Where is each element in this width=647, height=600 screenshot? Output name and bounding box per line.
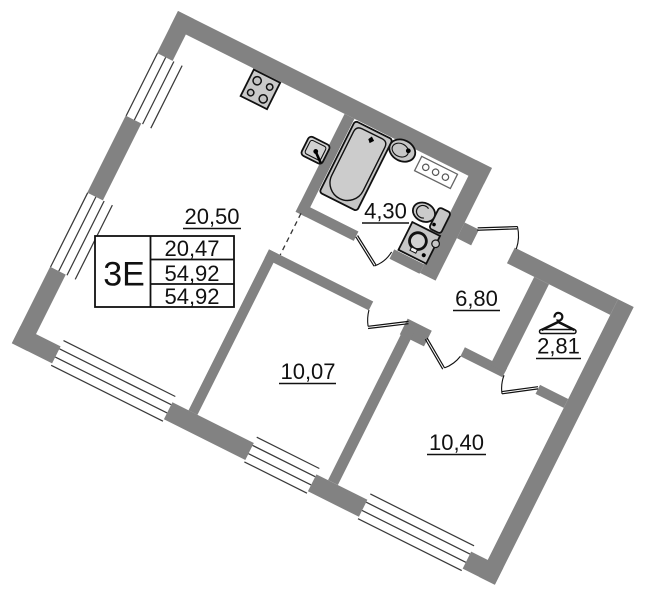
svg-text:10,07: 10,07 (280, 359, 335, 384)
svg-text:20,50: 20,50 (184, 204, 239, 229)
svg-text:4,30: 4,30 (364, 199, 407, 224)
svg-text:20,47: 20,47 (164, 236, 219, 261)
svg-text:3Е: 3Е (103, 256, 145, 294)
svg-text:6,80: 6,80 (455, 286, 498, 311)
svg-text:54,92: 54,92 (164, 284, 219, 309)
svg-text:54,92: 54,92 (164, 261, 219, 286)
svg-text:10,40: 10,40 (429, 430, 484, 455)
svg-text:2,81: 2,81 (537, 334, 580, 359)
